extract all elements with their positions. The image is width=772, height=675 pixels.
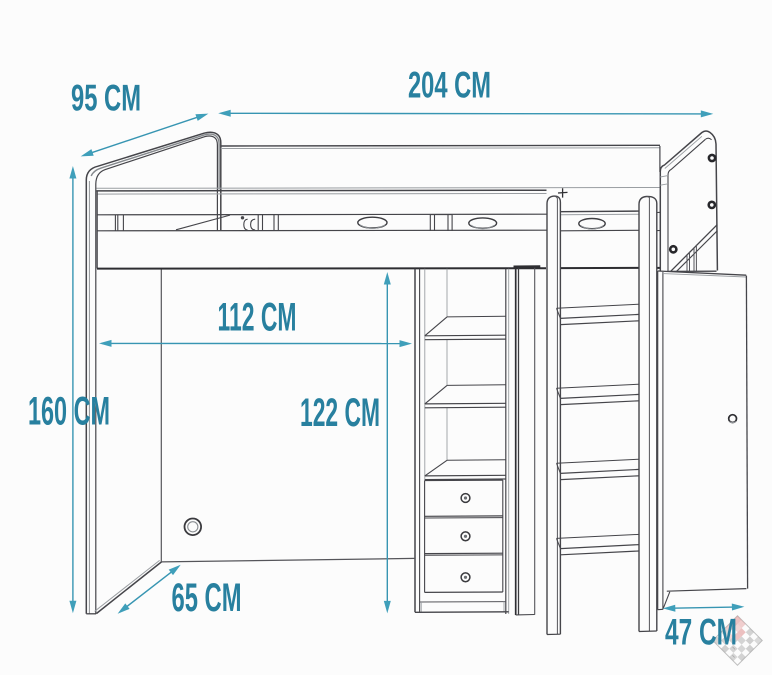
svg-text:160 CM: 160 CM <box>28 390 110 434</box>
svg-text:122 CM: 122 CM <box>300 391 380 435</box>
svg-text:65 CM: 65 CM <box>172 576 242 620</box>
svg-text:204 CM: 204 CM <box>408 65 491 106</box>
svg-text:95 CM: 95 CM <box>71 78 141 119</box>
svg-text:112 CM: 112 CM <box>218 295 297 339</box>
svg-text:47 CM: 47 CM <box>665 611 737 652</box>
